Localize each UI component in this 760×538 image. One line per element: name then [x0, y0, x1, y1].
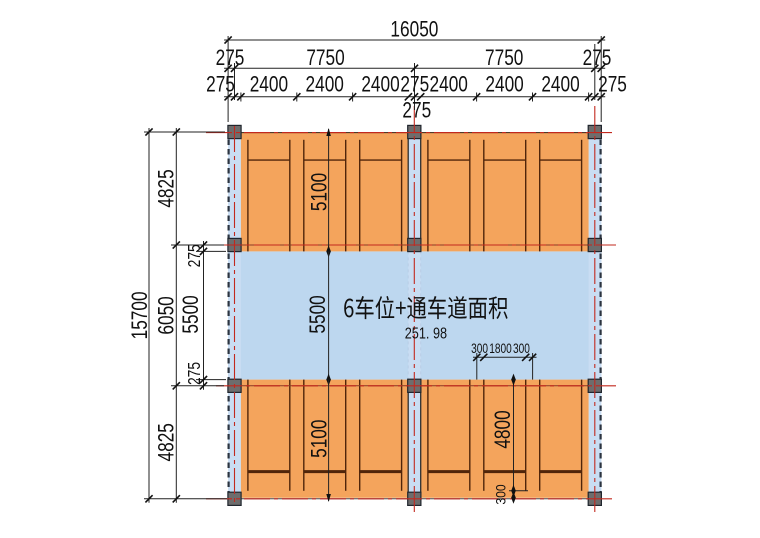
svg-text:2400: 2400	[430, 72, 468, 97]
svg-text:275: 275	[184, 362, 204, 385]
svg-text:275: 275	[598, 72, 627, 97]
svg-text:275: 275	[400, 72, 429, 97]
svg-text:5100: 5100	[307, 173, 332, 211]
svg-text:5500: 5500	[306, 295, 331, 333]
svg-text:16050: 16050	[390, 17, 438, 42]
svg-text:1800: 1800	[489, 340, 512, 356]
svg-text:251. 98: 251. 98	[405, 325, 447, 342]
svg-text:2400: 2400	[250, 72, 288, 97]
svg-text:15700: 15700	[128, 291, 153, 339]
svg-text:275: 275	[583, 46, 612, 71]
svg-text:4825: 4825	[155, 169, 180, 207]
svg-text:300: 300	[513, 340, 530, 356]
svg-text:4825: 4825	[155, 423, 180, 461]
svg-text:2400: 2400	[306, 72, 344, 97]
svg-text:7750: 7750	[485, 46, 523, 71]
svg-text:2400: 2400	[485, 72, 523, 97]
svg-text:275: 275	[216, 46, 245, 71]
svg-text:275: 275	[402, 98, 431, 123]
svg-text:2400: 2400	[541, 72, 579, 97]
svg-text:4800: 4800	[491, 410, 516, 448]
svg-text:300: 300	[493, 484, 509, 504]
svg-text:5500: 5500	[179, 295, 204, 333]
svg-text:275: 275	[206, 72, 235, 97]
svg-text:300: 300	[471, 340, 488, 356]
svg-text:7750: 7750	[306, 46, 344, 71]
svg-text:2400: 2400	[361, 72, 399, 97]
svg-text:6050: 6050	[155, 296, 180, 334]
svg-text:5100: 5100	[307, 420, 332, 458]
svg-text:275: 275	[184, 244, 204, 267]
